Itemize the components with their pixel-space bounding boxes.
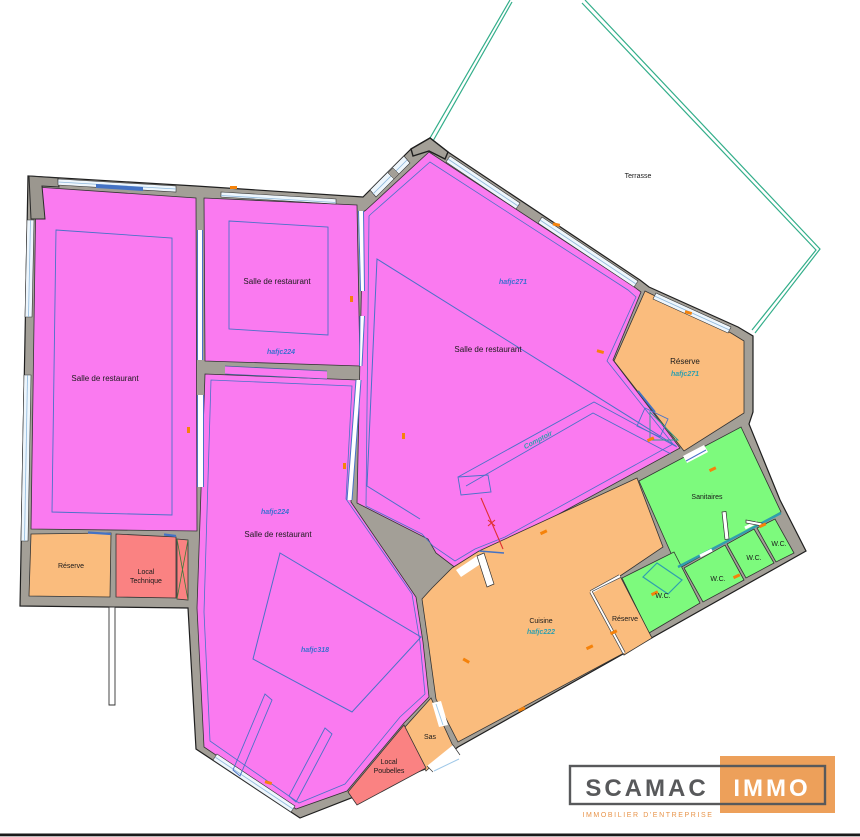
svg-text:Réserve: Réserve <box>612 616 638 623</box>
svg-text:Local: Local <box>381 759 398 766</box>
svg-text:W.C.: W.C. <box>655 593 670 600</box>
svg-text:Cuisine: Cuisine <box>529 618 552 625</box>
svg-text:Réserve: Réserve <box>58 563 84 570</box>
svg-text:hafjc224: hafjc224 <box>267 349 295 356</box>
svg-text:W.C.: W.C. <box>771 541 786 548</box>
svg-text:Salle de restaurant: Salle de restaurant <box>244 530 312 539</box>
svg-text:hafjc271: hafjc271 <box>671 371 699 378</box>
svg-text:Salle de restaurant: Salle de restaurant <box>71 374 139 383</box>
svg-text:SCAMAC: SCAMAC <box>585 775 708 802</box>
svg-text:W.C.: W.C. <box>710 576 725 583</box>
svg-text:Technique: Technique <box>130 578 162 585</box>
svg-text:IMMO: IMMO <box>733 775 810 802</box>
svg-text:Salle de restaurant: Salle de restaurant <box>454 345 522 354</box>
svg-text:Sas: Sas <box>424 734 437 741</box>
svg-text:Terrasse: Terrasse <box>625 173 652 180</box>
svg-text:hafjc224: hafjc224 <box>261 509 289 516</box>
svg-text:hafjc222: hafjc222 <box>527 629 555 636</box>
svg-text:Poubelles: Poubelles <box>374 768 405 775</box>
svg-text:Local: Local <box>138 569 155 576</box>
svg-text:hafjc318: hafjc318 <box>301 647 329 654</box>
svg-text:IMMOBILIER D'ENTREPRISE: IMMOBILIER D'ENTREPRISE <box>582 812 713 819</box>
svg-text:Salle de restaurant: Salle de restaurant <box>243 277 311 286</box>
svg-text:hafjc271: hafjc271 <box>499 279 527 286</box>
svg-text:Réserve: Réserve <box>670 357 700 366</box>
svg-text:W.C.: W.C. <box>746 555 761 562</box>
svg-text:Sanitaires: Sanitaires <box>691 494 723 501</box>
